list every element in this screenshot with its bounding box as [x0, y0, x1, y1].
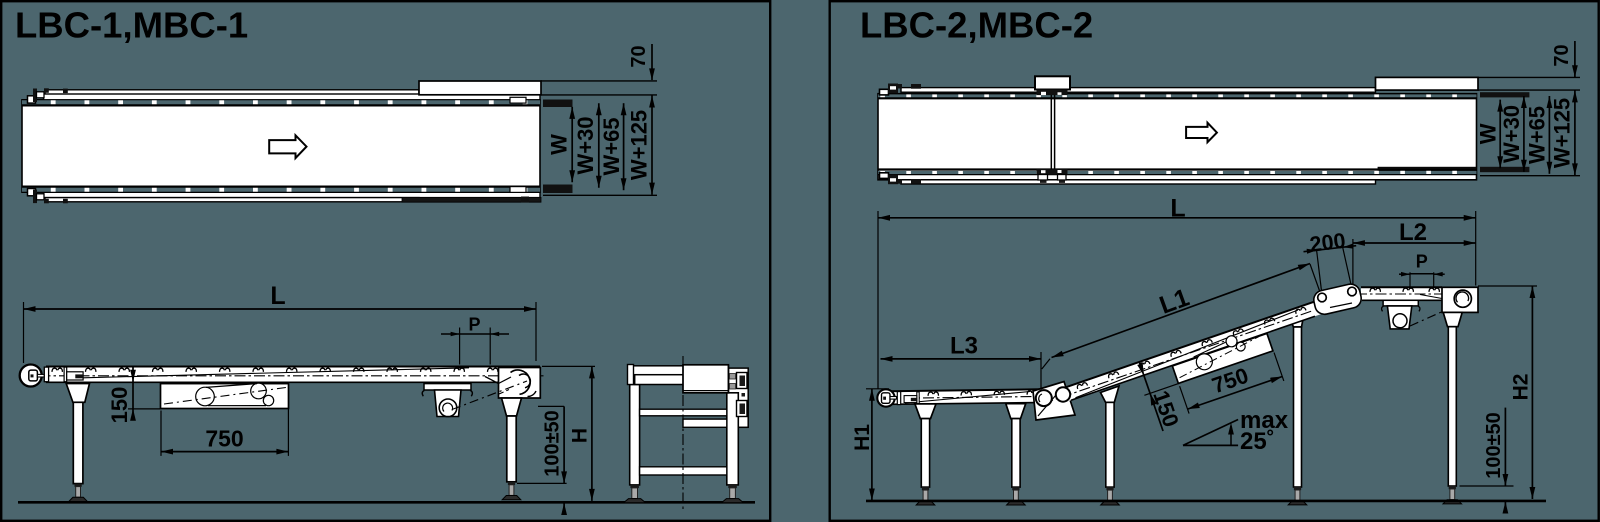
svg-text:L: L — [1170, 195, 1185, 223]
svg-text:H: H — [569, 428, 592, 443]
svg-text:W: W — [1475, 123, 1500, 144]
svg-text:W+65: W+65 — [599, 117, 624, 175]
svg-text:100±50: 100±50 — [542, 410, 564, 477]
svg-text:L: L — [270, 282, 285, 310]
svg-text:LBC-1,MBC-1: LBC-1,MBC-1 — [15, 5, 248, 46]
svg-text:P: P — [1416, 252, 1428, 272]
svg-text:100±50: 100±50 — [1483, 412, 1505, 479]
svg-text:200: 200 — [1308, 229, 1347, 257]
svg-text:L3: L3 — [950, 333, 978, 360]
svg-text:L2: L2 — [1399, 219, 1427, 246]
svg-text:W+30: W+30 — [573, 116, 598, 174]
svg-text:W+125: W+125 — [1549, 98, 1574, 168]
svg-text:25˚: 25˚ — [1240, 428, 1275, 455]
svg-text:70: 70 — [1551, 44, 1573, 66]
svg-text:W+65: W+65 — [1524, 106, 1549, 164]
svg-text:W+30: W+30 — [1499, 105, 1524, 163]
svg-text:W: W — [546, 134, 571, 155]
svg-text:H1: H1 — [851, 424, 874, 451]
svg-text:H2: H2 — [1510, 374, 1533, 401]
svg-text:750: 750 — [205, 426, 243, 452]
svg-text:150: 150 — [107, 387, 132, 424]
svg-text:70: 70 — [628, 45, 650, 67]
svg-text:P: P — [468, 315, 480, 335]
svg-text:LBC-2,MBC-2: LBC-2,MBC-2 — [860, 5, 1093, 46]
svg-text:W+125: W+125 — [626, 110, 651, 180]
